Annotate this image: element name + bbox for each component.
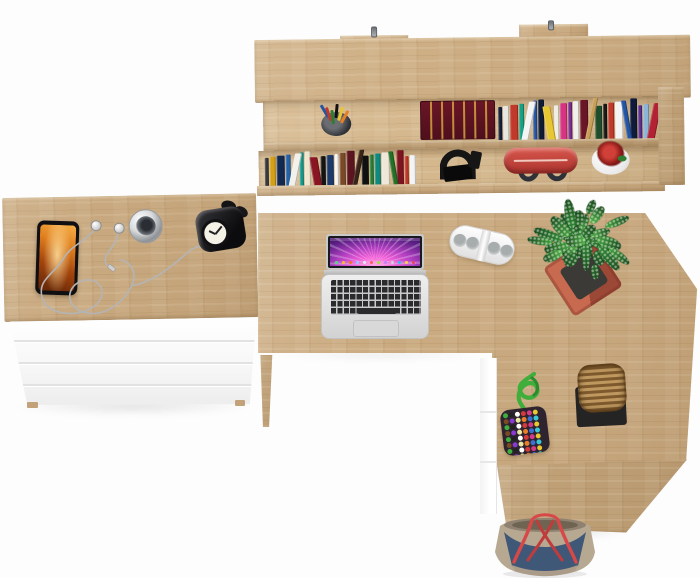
tote-bag [492, 508, 598, 578]
book-spine [568, 102, 572, 140]
laptop-body [321, 274, 429, 339]
laptop-screen [326, 234, 424, 270]
color-dot [529, 434, 535, 440]
product-photo-stage [0, 0, 700, 578]
side-unit-groove-1 [480, 411, 496, 413]
laptop-spacebar [358, 308, 396, 314]
book-spine [370, 155, 374, 186]
shelf-books-lower [265, 149, 426, 187]
book-spine [405, 156, 409, 185]
color-dot [527, 410, 533, 416]
color-dot [515, 417, 521, 423]
color-dot [507, 449, 513, 455]
color-dot [405, 261, 408, 264]
dresser-foot-left [27, 402, 38, 408]
headphones [436, 148, 488, 183]
color-dot [537, 445, 543, 451]
plant-foliage [532, 196, 632, 296]
color-dot [523, 429, 529, 435]
beaded-pouch [496, 370, 556, 456]
color-dot [349, 261, 352, 264]
color-dot [528, 422, 534, 428]
color-dot [532, 452, 538, 457]
alarm-hand-minute [215, 226, 223, 235]
shelf-books-upper [498, 97, 667, 141]
wall-hook-right-icon [548, 20, 554, 30]
book-spine [265, 158, 269, 187]
color-dot [517, 429, 523, 435]
color-dot [530, 440, 536, 446]
color-dot [538, 451, 544, 457]
color-dot [512, 442, 518, 448]
dresser [2, 189, 260, 324]
color-dot [518, 435, 524, 441]
color-dot [527, 416, 533, 422]
color-dot [391, 261, 394, 264]
color-dot [398, 261, 401, 264]
color-dot [503, 413, 509, 419]
color-dot [511, 430, 517, 436]
book-spine [638, 106, 642, 140]
shelf-right-panel [658, 87, 685, 185]
wall-shelf [253, 19, 700, 196]
laptop-menubar [330, 238, 420, 241]
laptop-wallpaper [330, 238, 420, 266]
dresser-drawer-front [10, 318, 256, 405]
desk-left-leg [259, 355, 273, 427]
color-dot [512, 436, 518, 442]
color-dot [503, 419, 509, 425]
color-dot [370, 261, 373, 264]
color-dot [506, 443, 512, 449]
pens [317, 102, 355, 126]
color-dot [529, 428, 535, 434]
color-dot [531, 446, 537, 452]
drawer-groove-1 [10, 340, 256, 342]
color-dot [335, 261, 338, 264]
drawer-groove-2 [10, 362, 256, 364]
book-spine [603, 104, 607, 140]
side-unit-groove-2 [480, 461, 496, 463]
plant-leaf [581, 241, 590, 271]
shelf-upper-row [263, 96, 666, 145]
color-dot [510, 424, 516, 430]
color-dot [509, 412, 515, 418]
laptop-trackpad [353, 320, 399, 337]
desk-side-unit-white [480, 358, 497, 514]
color-dot [524, 435, 530, 441]
book-spine [362, 156, 369, 186]
color-dot [536, 439, 542, 445]
color-dot [521, 411, 527, 417]
alarm-clock [193, 200, 254, 258]
tote-bag-graphic [492, 508, 598, 578]
book-spine [410, 155, 416, 185]
potted-plant [532, 196, 632, 311]
book-spine [375, 154, 381, 186]
book-spine [327, 155, 334, 186]
color-dot [513, 448, 519, 454]
dresser-foot-right [235, 400, 245, 406]
color-dot [518, 441, 524, 447]
color-dot [521, 417, 527, 423]
shelf-top-slab [254, 35, 691, 103]
book-spine [498, 107, 502, 141]
color-dot [525, 447, 531, 453]
book-spine [510, 105, 518, 141]
red-hardcover-book [420, 100, 495, 140]
color-dot [522, 423, 528, 429]
color-dot [505, 431, 511, 437]
color-dot [534, 421, 540, 427]
laptop [321, 233, 429, 339]
wicker-basket-set [574, 362, 630, 428]
color-dot [356, 261, 359, 264]
flower-leaf-bit [618, 155, 627, 161]
plant-leaf [589, 264, 599, 280]
color-dot [412, 261, 415, 264]
pouch-body [499, 405, 550, 456]
socket-4 [499, 243, 515, 259]
wall-hook-left-icon [371, 26, 377, 37]
color-dot [515, 412, 521, 418]
wicker-basket [576, 362, 627, 413]
watch-face [135, 216, 155, 236]
color-dot [506, 437, 512, 443]
book-spine [340, 152, 346, 186]
pen-cup [317, 102, 355, 138]
shelf-flower-pot [591, 141, 629, 174]
book-spine [560, 104, 567, 141]
drawer-groove-3 [10, 384, 256, 386]
color-dot [342, 261, 345, 264]
headphones-cup-2 [468, 150, 482, 169]
alarm-hand-hour [209, 230, 216, 235]
color-dot [384, 261, 387, 264]
color-dot [524, 441, 530, 447]
color-dot [533, 415, 539, 421]
book-spine [573, 101, 579, 140]
book-spine [335, 154, 339, 186]
flower-red-cluster [597, 141, 623, 165]
color-dot [535, 427, 541, 433]
color-dot [504, 425, 510, 431]
book-spine [608, 103, 614, 140]
book-spine [595, 105, 602, 140]
book-spine [270, 157, 276, 187]
color-dot [509, 418, 515, 424]
laptop-dock [334, 261, 416, 265]
color-dot [535, 433, 541, 439]
book-spine [503, 106, 509, 141]
color-dot [519, 447, 525, 453]
book-spine [277, 156, 285, 187]
color-dot [363, 261, 366, 264]
color-dot [516, 423, 522, 429]
color-dot [377, 261, 380, 264]
color-dot [532, 409, 538, 415]
